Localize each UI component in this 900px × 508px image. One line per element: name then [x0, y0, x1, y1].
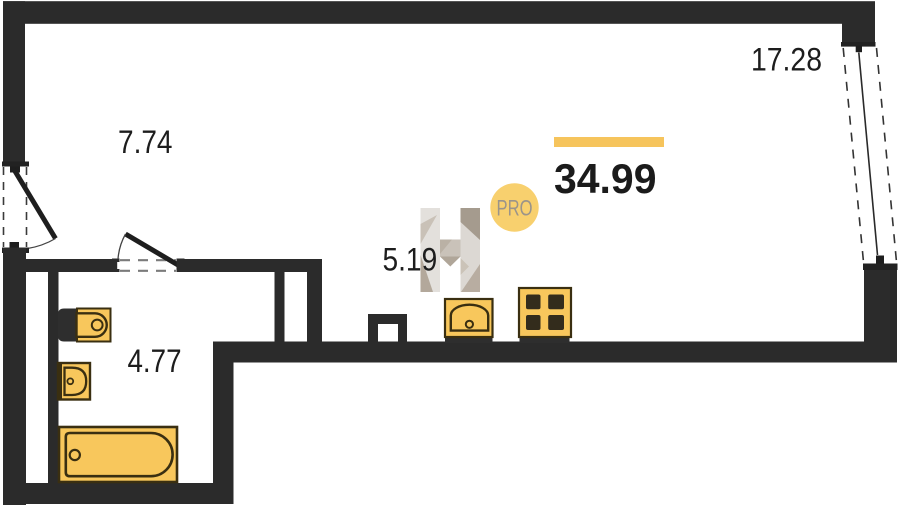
svg-text:7.74: 7.74 [118, 124, 173, 160]
svg-text:PRO: PRO [497, 195, 533, 220]
svg-text:4.77: 4.77 [128, 343, 182, 379]
svg-text:5.19: 5.19 [383, 242, 438, 278]
svg-text:34.99: 34.99 [554, 155, 657, 202]
svg-text:17.28: 17.28 [751, 41, 822, 77]
